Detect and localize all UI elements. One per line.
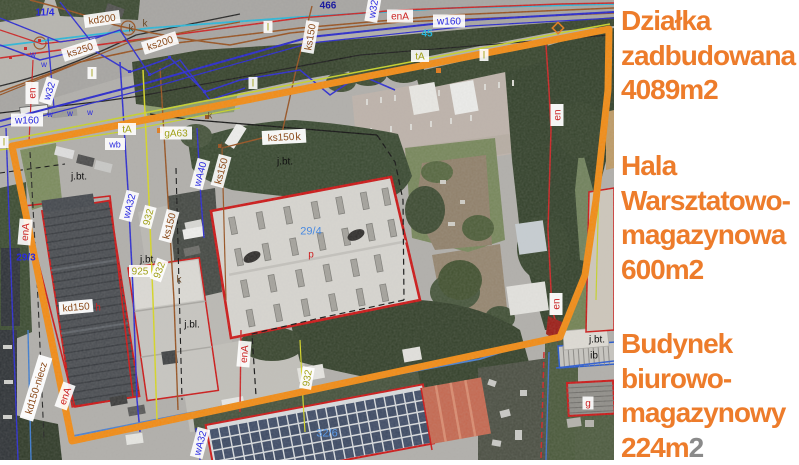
svg-text:11/4: 11/4 (36, 8, 55, 19)
svg-text:l: l (91, 69, 93, 80)
svg-text:tA: tA (122, 125, 132, 136)
svg-text:w: w (66, 109, 73, 118)
svg-text:j.bt.: j.bt. (588, 335, 605, 346)
svg-text:ks150: ks150 (267, 132, 295, 144)
svg-text:en: en (552, 298, 563, 309)
svg-text:w: w (46, 110, 53, 119)
svg-text:en: en (553, 109, 564, 120)
svg-text:w160: w160 (14, 116, 39, 127)
svg-text:l: l (267, 23, 269, 34)
svg-text:g: g (585, 399, 591, 410)
svg-text:45: 45 (421, 29, 433, 40)
svg-text:j.bt.: j.bt. (139, 255, 156, 266)
svg-text:enA: enA (20, 222, 33, 241)
svg-text:l: l (483, 51, 485, 62)
svg-text:j.bt.: j.bt. (276, 157, 293, 168)
svg-text:w: w (40, 60, 47, 69)
svg-text:29/3: 29/3 (16, 253, 36, 264)
svg-text:j.bt.: j.bt. (70, 172, 87, 183)
svg-text:w: w (29, 50, 36, 59)
svg-text:gA63: gA63 (164, 129, 188, 140)
svg-text:w160: w160 (436, 17, 461, 28)
svg-text:l: l (252, 79, 254, 90)
svg-text:h: h (95, 303, 101, 314)
svg-text:j.bl.: j.bl. (183, 320, 200, 331)
svg-text:tA: tA (415, 52, 425, 63)
svg-text:enA: enA (391, 12, 409, 23)
svg-text:wb: wb (108, 140, 121, 150)
svg-text:k: k (208, 111, 213, 121)
svg-text:925: 925 (132, 267, 149, 278)
svg-text:p: p (308, 250, 314, 261)
svg-text:k: k (221, 141, 226, 151)
svg-text:l: l (3, 138, 5, 149)
svg-text:enA: enA (239, 344, 252, 363)
svg-text:466: 466 (320, 1, 337, 12)
svg-text:29/4: 29/4 (300, 226, 321, 238)
svg-text:w: w (86, 108, 93, 117)
svg-text:32/6: 32/6 (316, 428, 337, 440)
svg-text:en: en (28, 87, 39, 98)
svg-text:ib: ib (590, 351, 598, 362)
